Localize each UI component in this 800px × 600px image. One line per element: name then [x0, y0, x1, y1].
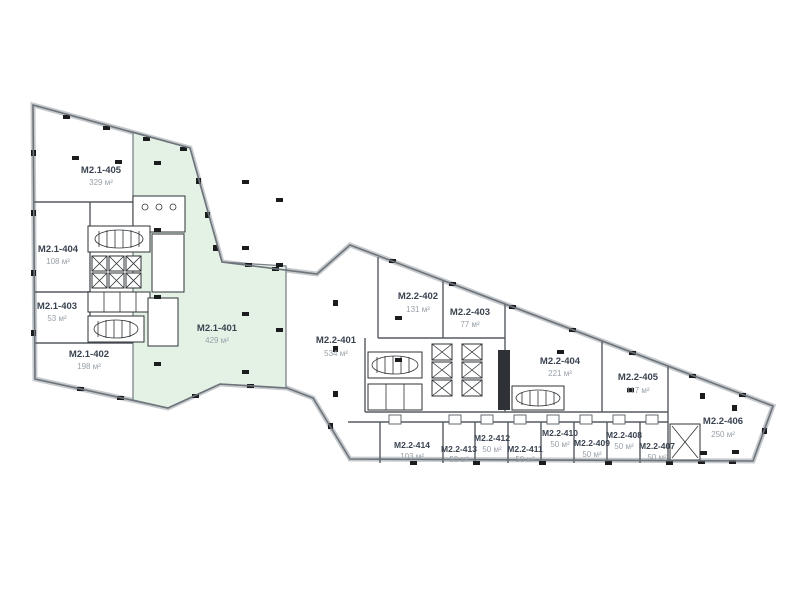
svg-text:53 м²: 53 м²: [47, 314, 67, 323]
svg-text:50 м²: 50 м²: [550, 440, 570, 449]
svg-text:M2.1-403: M2.1-403: [37, 301, 77, 312]
svg-text:50 м²: 50 м²: [482, 445, 502, 454]
floor-plan-svg: M2.1-405 329 м² M2.1-404 108 м² M2.1-403…: [0, 0, 800, 600]
svg-text:117 м²: 117 м²: [626, 386, 649, 395]
svg-text:198 м²: 198 м²: [77, 362, 101, 371]
svg-text:M2.2-414: M2.2-414: [394, 440, 430, 450]
svg-text:M2.2-402: M2.2-402: [398, 291, 438, 302]
svg-text:M2.2-413: M2.2-413: [441, 444, 477, 454]
svg-text:131 м²: 131 м²: [406, 305, 430, 314]
svg-text:M2.2-407: M2.2-407: [639, 441, 675, 451]
svg-text:M2.2-408: M2.2-408: [606, 430, 642, 440]
svg-text:M2.2-404: M2.2-404: [540, 356, 581, 367]
svg-text:103 м²: 103 м²: [400, 452, 424, 461]
svg-text:50 м²: 50 м²: [515, 455, 535, 464]
svg-text:M2.1-405: M2.1-405: [81, 165, 122, 176]
svg-text:M2.1-401: M2.1-401: [197, 323, 238, 334]
svg-text:50 м²: 50 м²: [449, 455, 469, 464]
svg-text:77 м²: 77 м²: [460, 320, 480, 329]
svg-text:M2.2-403: M2.2-403: [450, 307, 490, 318]
svg-text:M2.2-406: M2.2-406: [703, 416, 743, 427]
svg-text:329 м²: 329 м²: [89, 178, 113, 187]
svg-text:M2.2-410: M2.2-410: [542, 428, 578, 438]
svg-text:50 м²: 50 м²: [614, 442, 634, 451]
svg-text:M2.2-409: M2.2-409: [574, 438, 610, 448]
svg-text:534 м²: 534 м²: [324, 349, 348, 358]
svg-text:429 м²: 429 м²: [205, 336, 229, 345]
svg-text:50 м²: 50 м²: [582, 450, 602, 459]
svg-text:M2.2-412: M2.2-412: [474, 433, 510, 443]
svg-text:M2.1-404: M2.1-404: [38, 244, 79, 255]
svg-text:M2.2-405: M2.2-405: [618, 372, 659, 383]
svg-text:M2.2-401: M2.2-401: [316, 335, 357, 346]
svg-text:M2.2-411: M2.2-411: [507, 444, 543, 454]
svg-text:108 м²: 108 м²: [46, 257, 70, 266]
svg-text:221 м²: 221 м²: [548, 369, 572, 378]
svg-text:250 м²: 250 м²: [711, 430, 735, 439]
svg-text:M2.1-402: M2.1-402: [69, 349, 109, 360]
svg-text:50 м²: 50 м²: [647, 453, 667, 462]
